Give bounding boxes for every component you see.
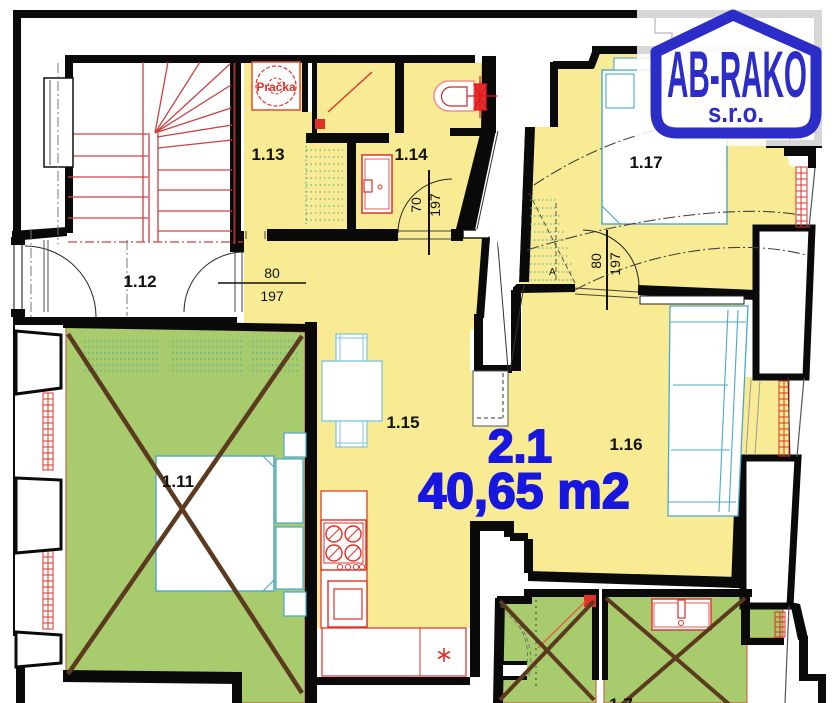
svg-text:s.r.o.: s.r.o. (708, 98, 764, 128)
svg-text:80: 80 (264, 265, 280, 281)
svg-text:Pračka: Pračka (256, 80, 296, 94)
svg-text:197: 197 (260, 288, 284, 304)
svg-text:1.16: 1.16 (609, 435, 642, 454)
svg-text:197: 197 (427, 193, 443, 217)
svg-text:80: 80 (588, 253, 604, 269)
svg-text:70: 70 (408, 197, 424, 213)
svg-text:1.7: 1.7 (609, 695, 633, 703)
svg-text:1.13: 1.13 (251, 145, 284, 164)
svg-text:40,65 m2: 40,65 m2 (418, 463, 629, 519)
svg-text:1.11: 1.11 (162, 472, 194, 491)
svg-text:1.15: 1.15 (386, 413, 419, 432)
svg-text:A: A (549, 267, 556, 278)
svg-text:1.12: 1.12 (123, 272, 156, 291)
svg-text:1.14: 1.14 (394, 145, 428, 164)
svg-text:1.17: 1.17 (629, 153, 662, 172)
